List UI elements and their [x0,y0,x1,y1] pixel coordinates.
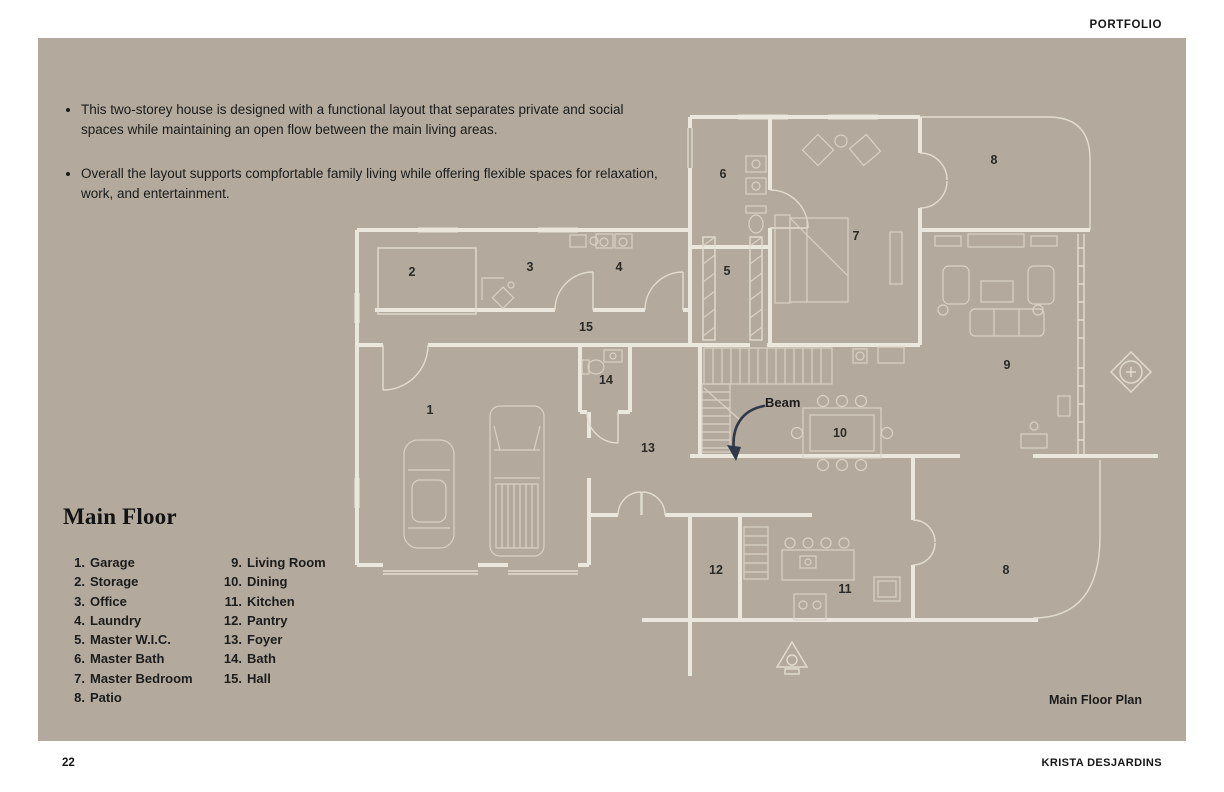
laundry-machines-icon [570,234,632,248]
room-label-hall: 15 [579,320,593,334]
armchair-icon [1028,266,1054,304]
car-icon [404,440,454,548]
compass-icon [1111,352,1151,392]
intro-bullet: Overall the layout supports compfortable… [81,164,666,203]
legend-item-hall: 15.Hall [220,669,326,688]
door-arc-bedroom [770,190,808,228]
legend-item-num: 10. [220,572,242,591]
legend-item-label: Storage [90,572,138,591]
patio-top-outline [920,117,1090,230]
bath-fixtures-icon [582,350,622,374]
sofa-icon [970,309,1044,336]
legend-item-label: Master Bedroom [90,669,193,688]
plan-canvas: This two-storey house is designed with a… [38,38,1186,741]
legend-item-num: 15. [220,669,242,688]
legend-item-bath: 14.Bath [220,649,326,668]
legend-item-num: 13. [220,630,242,649]
room-label-pantry: 12 [709,563,723,577]
legend-item-label: Office [90,592,127,611]
legend-item-master-wic: 5.Master W.I.C. [63,630,220,649]
legend-columns: 1.Garage 2.Storage 3.Office 4.Laundry 5.… [63,553,326,707]
legend-title: Main Floor [63,504,326,530]
legend-item-label: Foyer [247,630,282,649]
hutch-icon [853,347,904,363]
stove-icon [794,594,826,620]
legend-item-living-room: 9.Living Room [220,553,326,572]
kitchen-island-icon [782,538,854,580]
legend-item-num: 4. [63,611,85,630]
legend-item-label: Master W.I.C. [90,630,171,649]
legend-item-label: Kitchen [247,592,295,611]
room-label-master-bedroom: 7 [853,229,860,243]
legend-item-master-bedroom: 7.Master Bedroom [63,669,220,688]
legend-item-num: 5. [63,630,85,649]
legend-item-label: Master Bath [90,649,164,668]
door-arc-bedroom-patio [920,153,947,208]
plan-caption: Main Floor Plan [1049,693,1142,707]
beam-annotation: Beam [765,395,800,410]
room-label-storage: 2 [409,265,416,279]
legend-item-label: Laundry [90,611,141,630]
room-label-living-room: 9 [1004,358,1011,372]
legend-item-patio: 8.Patio [63,688,220,707]
room-label-bath: 14 [599,373,613,387]
legend-item-num: 12. [220,611,242,630]
legend-item-kitchen: 11.Kitchen [220,592,326,611]
legend-item-num: 9. [220,553,242,572]
legend-item-num: 7. [63,669,85,688]
wic-closet-right [750,237,762,340]
legend-item-foyer: 13.Foyer [220,630,326,649]
door-arc-kitchen-patio [913,520,935,565]
coffee-table-icon [981,281,1013,302]
page-number: 22 [62,757,75,769]
master-bath-fixtures-icon [746,156,766,233]
legend: Main Floor 1.Garage 2.Storage 3.Office 4… [63,504,326,707]
garage-doors [383,571,578,574]
entry-marker-icon [777,642,807,674]
window-wall [1078,234,1084,455]
legend-column-1: 1.Garage 2.Storage 3.Office 4.Laundry 5.… [63,553,220,707]
office-desk-icon [482,278,514,308]
pantry-shelves-icon [744,527,768,579]
intro-bullets: This two-storey house is designed with a… [62,100,666,228]
header-label: PORTFOLIO [1090,19,1162,31]
legend-item-label: Living Room [247,553,326,572]
beam-arrow [727,406,764,461]
legend-item-num: 6. [63,649,85,668]
closet-hatching [703,237,762,336]
door-arc-bath [587,412,618,443]
legend-item-dining: 10.Dining [220,572,326,591]
room-label-laundry: 4 [616,260,623,274]
legend-item-label: Hall [247,669,271,688]
room-label-patio-top: 8 [991,153,998,167]
portfolio-page: PORTFOLIO [0,0,1224,792]
legend-item-num: 2. [63,572,85,591]
grill-inner [878,581,896,597]
room-label-patio-bottom: 8 [1003,563,1010,577]
room-label-master-bath: 6 [720,167,727,181]
living-room-furniture-icon [935,234,1070,448]
door-arc-hall-right [645,272,683,310]
room-label-foyer: 13 [641,441,655,455]
truck-icon [490,406,544,556]
storage-shelving [378,248,476,314]
room-label-dining: 10 [833,426,847,440]
door-arc-foyer-entry [618,492,665,515]
legend-item-label: Dining [247,572,287,591]
legend-item-laundry: 4.Laundry [63,611,220,630]
bedroom-chairs-icon [802,134,880,165]
legend-item-num: 14. [220,649,242,668]
legend-item-num: 8. [63,688,85,707]
legend-item-pantry: 12.Pantry [220,611,326,630]
legend-column-2: 9.Living Room 10.Dining 11.Kitchen 12.Pa… [220,553,326,707]
legend-item-office: 3.Office [63,592,220,611]
legend-item-label: Patio [90,688,122,707]
patio-bottom-outline [1033,460,1100,618]
room-label-master-wic: 5 [724,264,731,278]
legend-item-label: Bath [247,649,276,668]
legend-item-label: Pantry [247,611,287,630]
legend-item-master-bath: 6.Master Bath [63,649,220,668]
legend-item-storage: 2.Storage [63,572,220,591]
room-label-office: 3 [527,260,534,274]
door-arc-garage [383,345,428,390]
dresser-icon [890,232,902,284]
legend-item-garage: 1.Garage [63,553,220,572]
author-name: KRISTA DESJARDINS [1042,757,1162,769]
intro-bullet: This two-storey house is designed with a… [81,100,666,139]
legend-item-num: 1. [63,553,85,572]
legend-item-num: 11. [220,592,242,611]
legend-item-num: 3. [63,592,85,611]
legend-item-label: Garage [90,553,135,572]
room-label-kitchen: 11 [838,582,851,596]
room-label-garage: 1 [427,403,434,417]
wic-closet-left [703,237,715,340]
door-arc-hall-left [555,272,593,310]
armchair-icon [943,266,969,304]
